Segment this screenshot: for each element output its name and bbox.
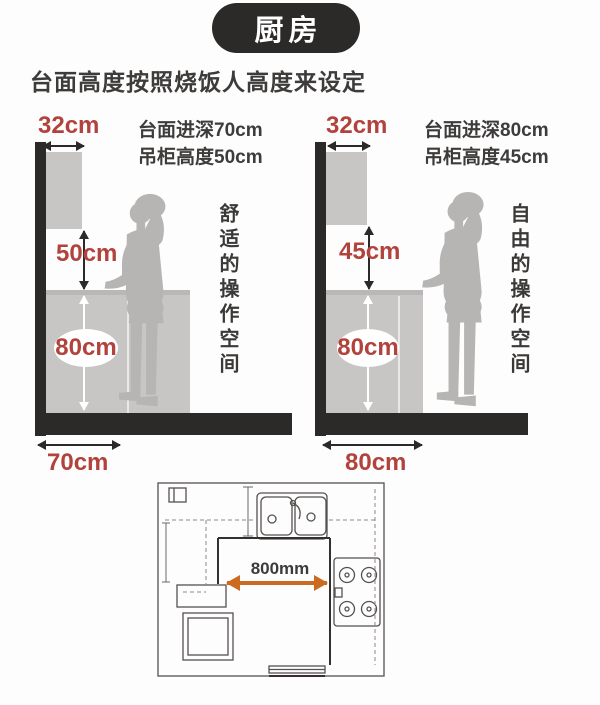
gap-height-label: 50cm (56, 242, 117, 266)
counter-height-label: 80cm (337, 334, 398, 362)
wall-cabinet (46, 152, 82, 229)
wall-cabinet-note: 吊柜高度50cm (138, 144, 263, 171)
counter-height-label: 80cm (55, 334, 116, 362)
wall-cabinet-note: 吊柜高度45cm (424, 144, 549, 171)
page-title: 厨房 (249, 7, 322, 49)
person-silhouette (100, 192, 200, 416)
cabinet-depth-label: 32cm (326, 114, 387, 138)
counter-depth-arrow-icon (38, 444, 120, 446)
floor-plan-drawing (153, 479, 389, 681)
floor-section (35, 413, 292, 435)
kitchen-infographic: 厨房 台面高度按照烧饭人高度来设定 32cm 台面进深70cm 吊柜高度50cm… (0, 0, 600, 705)
gap-height-label: 45cm (339, 240, 400, 264)
counter-height-badge: 80cm (337, 329, 399, 367)
counter-height-badge: 80cm (54, 329, 118, 367)
workspace-caption: 舒适的操作空间 (213, 203, 242, 378)
clearance-label: 800mm (237, 559, 323, 579)
cabinet-depth-arrow-icon (328, 145, 370, 147)
counter-depth-note: 台面进深70cm (138, 117, 263, 144)
diagram-notes: 台面进深80cm 吊柜高度45cm (424, 117, 549, 171)
floor-section (315, 413, 528, 435)
wall-cabinet (326, 152, 367, 225)
wall-section (35, 142, 46, 436)
clearance-arrow-icon (227, 581, 327, 585)
person-silhouette (418, 190, 518, 416)
counter-depth-note: 台面进深80cm (424, 117, 549, 144)
counter-depth-arrow-icon (323, 444, 422, 446)
title-badge: 厨房 (212, 3, 360, 53)
counter-depth-label: 80cm (345, 451, 406, 475)
diagram-notes: 台面进深70cm 吊柜高度50cm (138, 117, 263, 171)
cabinet-depth-label: 32cm (38, 114, 99, 138)
counter-depth-label: 70cm (47, 451, 108, 475)
wall-section (315, 142, 326, 436)
cabinet-depth-arrow-icon (43, 145, 84, 147)
subtitle: 台面高度按照烧饭人高度来设定 (30, 63, 366, 97)
